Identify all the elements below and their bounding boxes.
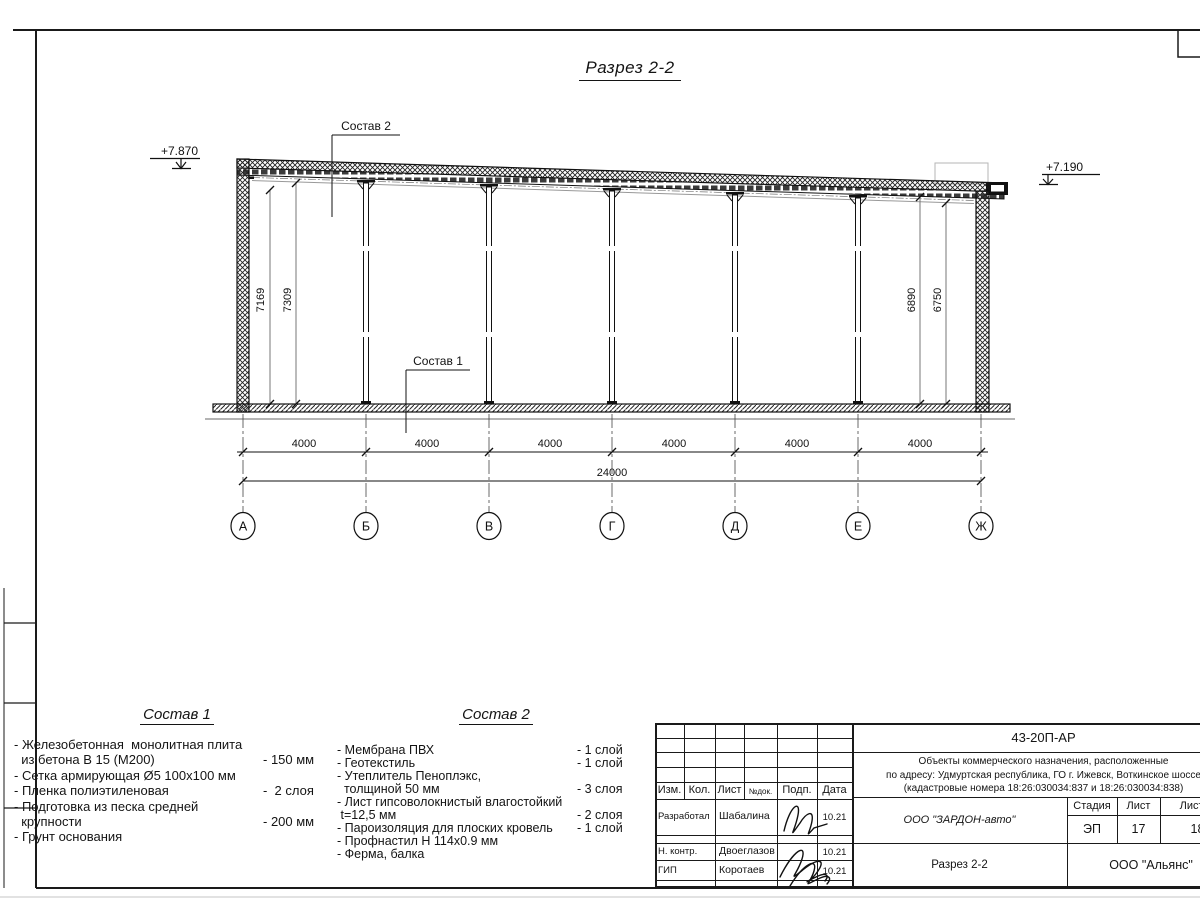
row-name: Коротаев — [719, 864, 764, 876]
leader-sostav2-label: Состав 2 — [341, 119, 391, 133]
material-list-sostav2: Состав 2 - Мембрана ПВХ- 1 слой - Геотек… — [337, 706, 655, 861]
org-name: ООО "Альянс" — [1067, 843, 1200, 886]
elevation-right-label: +7.190 — [1046, 160, 1083, 174]
sostav1-title: Состав 1 — [14, 706, 340, 725]
span-dim-5: 4000 — [785, 438, 809, 450]
span-dim-1: 4000 — [292, 438, 316, 450]
signature-razrabotal — [784, 806, 827, 834]
axis-g: Г — [609, 520, 616, 534]
col-izm: Изм. — [655, 784, 684, 796]
floor-slab — [213, 404, 1010, 412]
title-block: Изм. Кол. Лист №док. Подп. Дата Разработ… — [655, 723, 1200, 888]
col-podp: Подп. — [777, 784, 817, 796]
horizontal-dimensions: 4000 4000 4000 4000 4000 4000 24000 — [237, 438, 988, 485]
sheet-number: 17 — [1117, 822, 1160, 836]
doc-number: 43-20П-АР — [852, 730, 1200, 745]
page-title: Разрез 2-2 — [545, 58, 715, 81]
drawing-sheet: +7.870 +7.190 Состав 2 Состав 1 — [0, 0, 1200, 900]
stage-label: Стадия — [1067, 800, 1117, 812]
row-name: Шабалина — [719, 810, 770, 822]
left-wall — [237, 159, 249, 412]
sheet-title-cell: Разрез 2-2 — [852, 843, 1067, 886]
span-dim-2: 4000 — [415, 438, 439, 450]
col-data: Дата — [817, 784, 852, 796]
dim-7169: 7169 — [255, 288, 267, 312]
list-item: крупности- 200 мм — [14, 814, 340, 829]
col-ndok: №док. — [744, 787, 777, 796]
axis-e: Е — [854, 520, 862, 534]
row-role: Н. контр. — [658, 846, 697, 857]
sostav1-rows: - Железобетонная монолитная плита из бет… — [14, 737, 340, 845]
list-item: - Подготовка из песка средней — [14, 799, 340, 814]
span-dim-4: 4000 — [662, 438, 686, 450]
row-name: Двоеглазов — [719, 845, 775, 857]
dim-6750: 6750 — [932, 288, 944, 312]
list-item: - Железобетонная монолитная плита — [14, 737, 340, 752]
sostav2-title: Состав 2 — [337, 706, 655, 725]
col-list: Лист — [715, 784, 744, 796]
company-name: ООО "ЗАРДОН-авто" — [852, 797, 1067, 843]
axis-zh: Ж — [975, 520, 987, 534]
total-dim: 24000 — [597, 467, 628, 479]
material-list-sostav1: Состав 1 - Железобетонная монолитная пли… — [14, 706, 340, 845]
page-title-text: Разрез 2-2 — [579, 58, 680, 81]
axis-lines — [243, 414, 981, 512]
list-item: - Грунт основания — [14, 829, 340, 844]
list-item: - Ферма, балка — [337, 848, 655, 861]
corner-box — [1178, 30, 1200, 57]
axis-v: В — [485, 520, 493, 534]
sheet-label: Лист — [1117, 800, 1160, 812]
signature-nkontr — [780, 850, 827, 882]
list-item: - Пленка полиэтиленовая- 2 слоя — [14, 783, 340, 798]
elevation-mark-left: +7.870 — [150, 144, 200, 169]
elevation-mark-right: +7.190 — [1039, 160, 1100, 185]
roof — [237, 159, 1008, 204]
sheets-label: Листов — [1160, 800, 1200, 812]
list-item: из бетона В 15 (М200)- 150 мм — [14, 752, 340, 767]
list-item: - Сетка армирующая Ø5 100x100 мм — [14, 768, 340, 783]
col-kol: Кол. — [684, 784, 715, 796]
row-role: Разработал — [658, 811, 710, 822]
sostav2-rows: - Мембрана ПВХ- 1 слой - Геотекстиль- 1 … — [337, 744, 655, 861]
vertical-dimensions: 7169 7309 6890 6750 — [255, 179, 950, 408]
leader-sostav1-label: Состав 1 — [413, 354, 463, 368]
stage-value: ЭП — [1067, 822, 1117, 836]
sheets-total: 18 — [1160, 822, 1200, 836]
axis-a: А — [239, 520, 248, 534]
elevation-left-label: +7.870 — [161, 144, 198, 158]
axis-b: Б — [362, 520, 370, 534]
axis-bubbles: А Б В Г Д Е Ж — [231, 513, 993, 540]
span-dim-3: 4000 — [538, 438, 562, 450]
signatures — [770, 797, 860, 889]
dim-7309: 7309 — [282, 288, 294, 312]
dim-6890: 6890 — [906, 288, 918, 312]
row-role: ГИП — [658, 865, 677, 876]
leader-sostav1: Состав 1 — [406, 354, 470, 433]
right-wall — [976, 191, 989, 412]
span-dim-6: 4000 — [908, 438, 932, 450]
project-description: Объекты коммерческого назначения, распол… — [852, 755, 1200, 796]
axis-d: Д — [731, 520, 740, 534]
